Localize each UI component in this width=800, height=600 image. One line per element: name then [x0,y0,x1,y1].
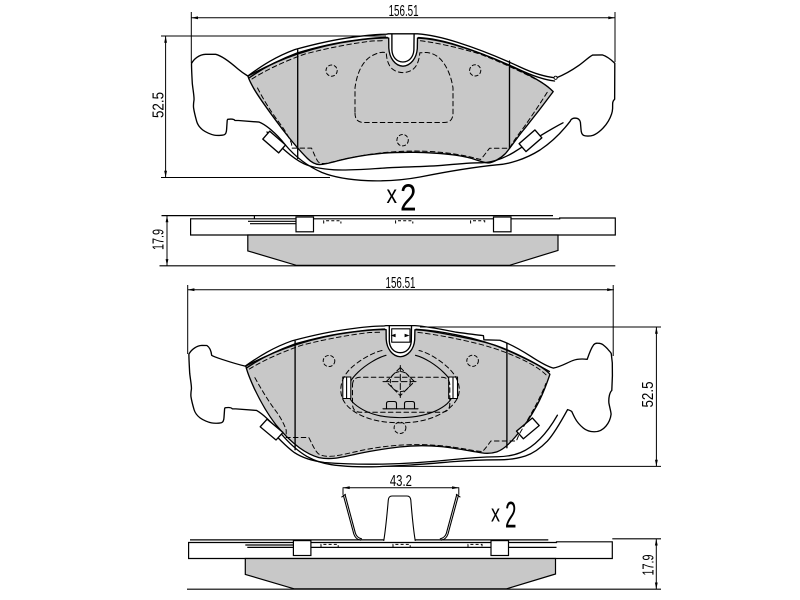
svg-text:17.9: 17.9 [641,555,658,576]
svg-text:43.2: 43.2 [390,473,412,490]
svg-text:x: x [491,501,500,528]
svg-text:52.5: 52.5 [640,382,657,408]
svg-text:x: x [387,181,398,209]
svg-text:2: 2 [400,178,417,220]
svg-text:156.51: 156.51 [386,275,416,292]
svg-text:156.51: 156.51 [389,3,419,20]
svg-text:2: 2 [505,495,517,536]
svg-text:17.9: 17.9 [151,229,168,250]
svg-text:52.5: 52.5 [151,92,168,118]
